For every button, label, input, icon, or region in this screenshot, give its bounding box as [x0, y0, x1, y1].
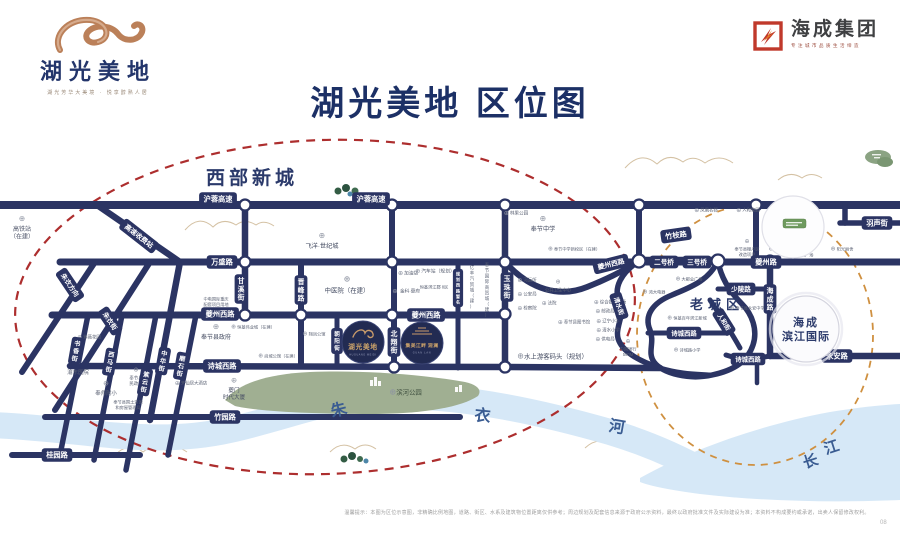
svg-text:林果公园: 林果公园: [510, 210, 529, 217]
poi-marker-icon: ⊕: [555, 280, 560, 286]
junction-node: [500, 362, 511, 373]
poi-marker-icon: ⊕: [517, 292, 522, 298]
poi-label: 尚城公馆（在建）⊕: [258, 352, 297, 359]
poi-marker-icon: ⊕: [517, 306, 522, 312]
svg-text:高铁站: 高铁站: [13, 225, 31, 233]
page-number: 08: [880, 520, 887, 526]
poi-marker-icon: ⊕: [231, 325, 236, 331]
road-label-pill: 规划西路暂名: [453, 269, 463, 308]
road-label-pill: 北翔街: [388, 327, 401, 357]
svg-text:（在建）: （在建）: [10, 232, 34, 240]
svg-text:人和家园: 人和家园: [742, 207, 760, 214]
road-label-pill: 桂园路: [42, 448, 73, 461]
page-title: 湖光美地 区位图: [310, 76, 589, 125]
poi-marker-icon: ⊕: [745, 239, 750, 245]
poi-label: 法院⊕: [542, 300, 557, 307]
svg-text:三号桥: 三号桥: [687, 257, 707, 266]
project-name-latin: GUAN LAN: [413, 352, 432, 355]
poi-marker-icon: ⊕: [303, 332, 308, 338]
road-label-pill: 紫云街: [137, 367, 154, 396]
junction-node: [387, 310, 398, 321]
svg-text:尚城公馆（在建）: 尚城公馆（在建）: [264, 352, 298, 359]
school-logo: [783, 219, 806, 228]
poi-marker-icon: ⊕: [319, 231, 326, 240]
project-circle-jimeijiangpan: 集美江畔 观澜 GUAN LAN: [401, 322, 443, 364]
svg-text:甘溪街: 甘溪街: [237, 276, 245, 301]
svg-text:500M: 500M: [623, 352, 634, 357]
svg-text:北翔街: 北翔街: [390, 329, 398, 354]
svg-text:邮政局: 邮政局: [601, 308, 614, 315]
project-logo-tagline: 湖光芳华大美境 · 悦享醇熟人居: [18, 89, 178, 96]
project-name: 湖光美地: [348, 342, 378, 351]
disclaimer-text: 温馨提示：本图为区位示意图，非精确比例地图，道路、街区、水系及建筑物位置距离仅供…: [318, 509, 896, 516]
poi-label: 恒基滨江郡 8区: [420, 283, 449, 290]
poi-label: 恒基伟业城（在建）⊕: [231, 323, 275, 330]
junction-node: [712, 255, 725, 268]
river-name-char: 衣: [474, 405, 492, 426]
poi-marker-icon: ⊕: [558, 320, 563, 326]
svg-text:恒基滨江郡 8区: 恒基滨江郡 8区: [420, 283, 449, 290]
poi-marker-icon: ⊕: [344, 275, 351, 284]
svg-text:恒基伟业城（在建）: 恒基伟业城（在建）: [237, 323, 275, 330]
northeast-poi-circle: [762, 196, 824, 258]
svg-text:沪蓉高速: 沪蓉高速: [357, 195, 387, 204]
svg-text:大都会广场: 大都会广场: [682, 275, 703, 282]
landmark-name-line2: 滨江国际: [782, 329, 830, 343]
road-label-pill: 竹园路: [210, 410, 241, 423]
poi-label: 奉节县政府⊕: [201, 322, 231, 341]
svg-text:翔凤公馆: 翔凤公馆: [309, 330, 326, 337]
svg-text:法院: 法院: [548, 300, 557, 307]
road-label-pill: 二号桥: [650, 256, 679, 269]
location-map-poster: 西部新城老城区 高铁站（在建）⊕紫薇花园⊕渝东医院⊕奉师附小⊕奉节县民政局⊕奉节…: [0, 0, 900, 536]
poi-label: 水上游客码头（规划）⊕: [517, 351, 588, 360]
poi-marker-icon: ⊕: [694, 208, 699, 214]
svg-text:金科·夔府: 金科·夔府: [400, 288, 420, 295]
svg-text:水上游客码头（规划）: 水上游客码头（规划）: [524, 351, 588, 360]
svg-text:恒基百年滨江新城: 恒基百年滨江新城: [673, 314, 707, 321]
svg-text:诗城西路: 诗城西路: [671, 328, 697, 337]
brand-name: 海成集团: [791, 20, 879, 39]
svg-text:羽声街: 羽声街: [866, 219, 888, 228]
poi-marker-icon: ⊕: [674, 348, 679, 354]
road-label-pill: 竹枝路: [660, 226, 692, 244]
poi-label: 奉节县国土资源和房屋管理局: [113, 398, 143, 411]
svg-text:奉节中学: 奉节中学: [531, 225, 556, 233]
wetland-park-icon: [865, 150, 893, 167]
junction-node: [634, 200, 645, 211]
svg-text:清水小学: 清水小学: [602, 327, 620, 334]
svg-text:阳光丽舍: 阳光丽舍: [837, 245, 855, 252]
svg-text:高速收费站: 高速收费站: [123, 222, 155, 250]
svg-text:公共卫生中心: 公共卫生中心: [545, 287, 572, 294]
junction-node: [633, 255, 646, 268]
junction-node: [240, 200, 251, 211]
poi-label: 汽车站（规划）⊕: [415, 268, 455, 275]
road-label-pill: 玉珠街: [501, 272, 514, 302]
road-label-pill: 万盛路: [207, 255, 238, 268]
poi-marker-icon: ⊕: [548, 247, 553, 253]
road-label-pill: 沪蓉高速: [352, 192, 390, 205]
poi-label: 中电国际重庆配套项目用地: [203, 295, 229, 308]
poi-label: 奉节县图书馆⊕: [558, 319, 591, 326]
svg-text:亿丰汽贸城（建）: 亿丰汽贸城（建）: [470, 264, 475, 309]
poi-label: 天仙居大酒店⊕: [175, 380, 208, 387]
svg-text:紫薇花园: 紫薇花园: [83, 334, 101, 341]
poi-marker-icon: ⊕: [517, 352, 524, 361]
junction-node: [500, 309, 511, 320]
landmark-name-line1: 海成: [793, 315, 819, 329]
poi-label: 亿丰汽贸城（建）: [470, 264, 475, 309]
svg-text:夔门: 夔门: [228, 386, 240, 394]
poi-label: 中医院（在建）⊕: [325, 275, 370, 295]
poi-marker-icon: ⊕: [504, 210, 509, 217]
road-label-pill: 少陵路: [727, 283, 756, 296]
road-label-pill: 夔州路: [751, 255, 782, 268]
svg-text:奉师附小: 奉师附小: [95, 389, 117, 397]
svg-text:沪蓉高速: 沪蓉高速: [204, 195, 234, 204]
road-label-pill: 夔州西路: [201, 307, 239, 320]
poi-marker-icon: ⊕: [392, 288, 397, 295]
junction-node: [240, 257, 251, 268]
svg-text:玉珠街: 玉珠街: [503, 275, 511, 299]
project-circle-huguangmeidi: 湖光美地 HUGUANG MEIDI: [342, 321, 384, 363]
poi-marker-icon: ⊕: [103, 381, 109, 388]
svg-text:竹园路: 竹园路: [213, 413, 236, 422]
poi-label: 公共卫生中心⊕: [545, 280, 572, 294]
poi-label: 阳光丽舍⊕: [831, 245, 855, 252]
riverside-park: [225, 371, 479, 414]
road-label-pill: 羽声街: [862, 216, 893, 229]
road-label-pill: 晋峰路: [295, 275, 308, 305]
poi-label: 凤凰名郡⊕: [694, 207, 718, 214]
road-label-pill: 书香街: [68, 336, 85, 365]
junction-node: [296, 310, 307, 321]
svg-text:渝东医院: 渝东医院: [67, 368, 89, 376]
svg-text:凤凰名郡: 凤凰名郡: [700, 207, 718, 214]
poi-marker-icon: ⊕: [389, 388, 396, 397]
road-label-pill: 三号桥: [683, 256, 712, 269]
poi-label: 林果公园⊕: [504, 210, 529, 217]
junction-node: [387, 257, 398, 268]
poi-marker-icon: ⊕: [736, 208, 741, 214]
svg-text:夔州西路: 夔州西路: [411, 311, 442, 320]
poi-label: 诗城路小学⊕: [674, 346, 701, 353]
svg-text:奉节县永安中学: 奉节县永安中学: [735, 304, 764, 311]
road-label-pill: 诗城西路: [667, 327, 702, 340]
road-label-pill: 诗城西路: [203, 359, 241, 372]
svg-text:飞洋·世纪城: 飞洋·世纪城: [306, 242, 339, 250]
poi-marker-icon: ⊕: [831, 247, 836, 253]
project-name-latin: HUGUANG MEIDI: [349, 354, 376, 357]
svg-text:供电局: 供电局: [601, 336, 614, 343]
svg-text:奉节县图书馆: 奉节县图书馆: [564, 319, 591, 326]
svg-text:奉节县政府: 奉节县政府: [201, 333, 231, 341]
road-label-pill: 朝阳街: [331, 328, 343, 354]
project-logo: 湖光美地 湖光芳华大美境 · 悦享醇熟人居: [18, 10, 178, 96]
svg-text:奉节国际商贸城（建）: 奉节国际商贸城（建）: [485, 261, 490, 317]
poi-label: 鸿大电器⊕: [643, 288, 667, 295]
poi-marker-icon: ⊕: [595, 337, 600, 343]
svg-text:二号桥: 二号桥: [654, 257, 674, 266]
junction-node: [389, 362, 400, 373]
poi-marker-icon: ⊕: [626, 339, 631, 345]
poi-marker-icon: ⊕: [594, 300, 599, 306]
junction-node: [500, 257, 511, 268]
poi-marker-icon: ⊕: [595, 309, 600, 315]
poi-label: 邮政局⊕: [595, 308, 614, 315]
road-label-pill: 西马街: [102, 347, 119, 376]
road-label-pill: 中华街: [155, 346, 172, 375]
project-logo-wordmark: 湖光美地: [18, 54, 178, 86]
road-label-pill: 诗城西路: [731, 353, 766, 366]
svg-text:时代大厦: 时代大厦: [223, 393, 246, 401]
poi-label: 恒基百年滨江新城⊕: [667, 314, 707, 321]
poi-label: 奉节国际商贸城（建）: [485, 261, 490, 317]
svg-text:诗城路小学: 诗城路小学: [680, 346, 701, 353]
svg-text:检察院: 检察院: [523, 305, 537, 312]
poi-marker-icon: ⊕: [540, 214, 547, 223]
poi-label: 金科·夔府⊕: [392, 288, 420, 295]
road-label-pill: 甘溪街: [235, 274, 248, 304]
svg-text:万盛路: 万盛路: [210, 258, 233, 267]
svg-text:诗城西路: 诗城西路: [208, 362, 238, 371]
poi-label: 奉节中学⊕: [531, 214, 556, 233]
svg-text:朝阳街: 朝阳街: [333, 330, 340, 352]
poi-marker-icon: ⊕: [258, 354, 263, 360]
poi-marker-icon: ⊕: [213, 322, 219, 331]
svg-text:诗城西路: 诗城西路: [735, 354, 761, 363]
poi-marker-icon: ⊕: [676, 277, 681, 283]
svg-text:和房屋管理局: 和房屋管理局: [115, 404, 140, 411]
road-label-pill: 高速收费站: [118, 218, 160, 255]
svg-text:夔州路: 夔州路: [754, 258, 777, 267]
ribbon-logo-icon: [38, 10, 158, 56]
poi-label: 翔凤公馆⊕: [303, 330, 326, 337]
svg-text:天仙居大酒店: 天仙居大酒店: [181, 380, 208, 387]
svg-text:鸿大电器: 鸿大电器: [649, 288, 667, 295]
svg-text:滨河公园: 滨河公园: [396, 387, 422, 396]
poi-marker-icon: ⊕: [596, 328, 601, 334]
svg-text:公安局: 公安局: [523, 291, 536, 298]
poi-marker-icon: ⊕: [133, 368, 138, 374]
poi-marker-icon: ⊕: [19, 214, 25, 223]
poi-marker-icon: ⊕: [596, 319, 601, 325]
svg-text:晋峰路: 晋峰路: [298, 277, 305, 302]
road-label-pill: 磨石街: [173, 351, 190, 380]
poi-label: 公安局⊕: [517, 291, 536, 298]
junction-node: [240, 310, 251, 321]
poi-label: 滨河公园⊕: [389, 387, 421, 396]
svg-text:奉节中学新校区（在建）: 奉节中学新校区（在建）: [554, 245, 600, 252]
svg-text:配套项目用地: 配套项目用地: [203, 301, 229, 308]
brand-tagline: 专注城市品质生活缔造: [791, 43, 879, 49]
poi-marker-icon: ⊕: [667, 316, 672, 322]
poi-marker-icon: ⊕: [517, 278, 522, 284]
poi-label: 飞洋·世纪城⊕: [306, 231, 339, 250]
brand-mark-icon: [752, 20, 784, 52]
road-label-pill: 沪蓉高速: [199, 192, 237, 205]
poi-label: 奉节中学新校区（在建）⊕: [548, 245, 600, 252]
svg-text:少陵路: 少陵路: [730, 284, 751, 293]
svg-text:夔州西路: 夔州西路: [205, 310, 236, 319]
poi-label: 检察院⊕: [517, 305, 537, 312]
poi-marker-icon: ⊕: [398, 270, 403, 277]
poi-marker-icon: ⊕: [231, 375, 237, 384]
svg-text:中医院（在建）: 中医院（在建）: [325, 285, 370, 294]
landmark-circle-haicheng: 海成 滨江国际: [770, 293, 842, 365]
poi-marker-icon: ⊕: [643, 290, 648, 296]
poi-label: 高铁站（在建）⊕: [10, 214, 34, 240]
road-label-pill: 清水街: [609, 291, 629, 321]
poi-marker-icon: ⊕: [729, 306, 734, 312]
project-name: 集美江畔 观澜: [405, 342, 439, 349]
developer-brand: 海成集团 专注城市品质生活缔造: [752, 20, 879, 52]
poi-marker-icon: ⊕: [175, 381, 180, 387]
road-label-pill: 夔州西路: [407, 308, 445, 321]
svg-text:桂园路: 桂园路: [45, 451, 68, 460]
poi-marker-icon: ⊕: [415, 268, 420, 275]
river-name-char: 河: [607, 416, 626, 437]
poi-marker-icon: ⊕: [542, 301, 547, 307]
svg-text:汽车站（规划）: 汽车站（规划）: [421, 268, 455, 275]
district-label: 西部新城: [206, 166, 298, 189]
svg-text:海成路: 海成路: [767, 286, 774, 311]
poi-label: 供电局⊕: [595, 336, 614, 343]
svg-text:河运所: 河运所: [523, 277, 537, 284]
